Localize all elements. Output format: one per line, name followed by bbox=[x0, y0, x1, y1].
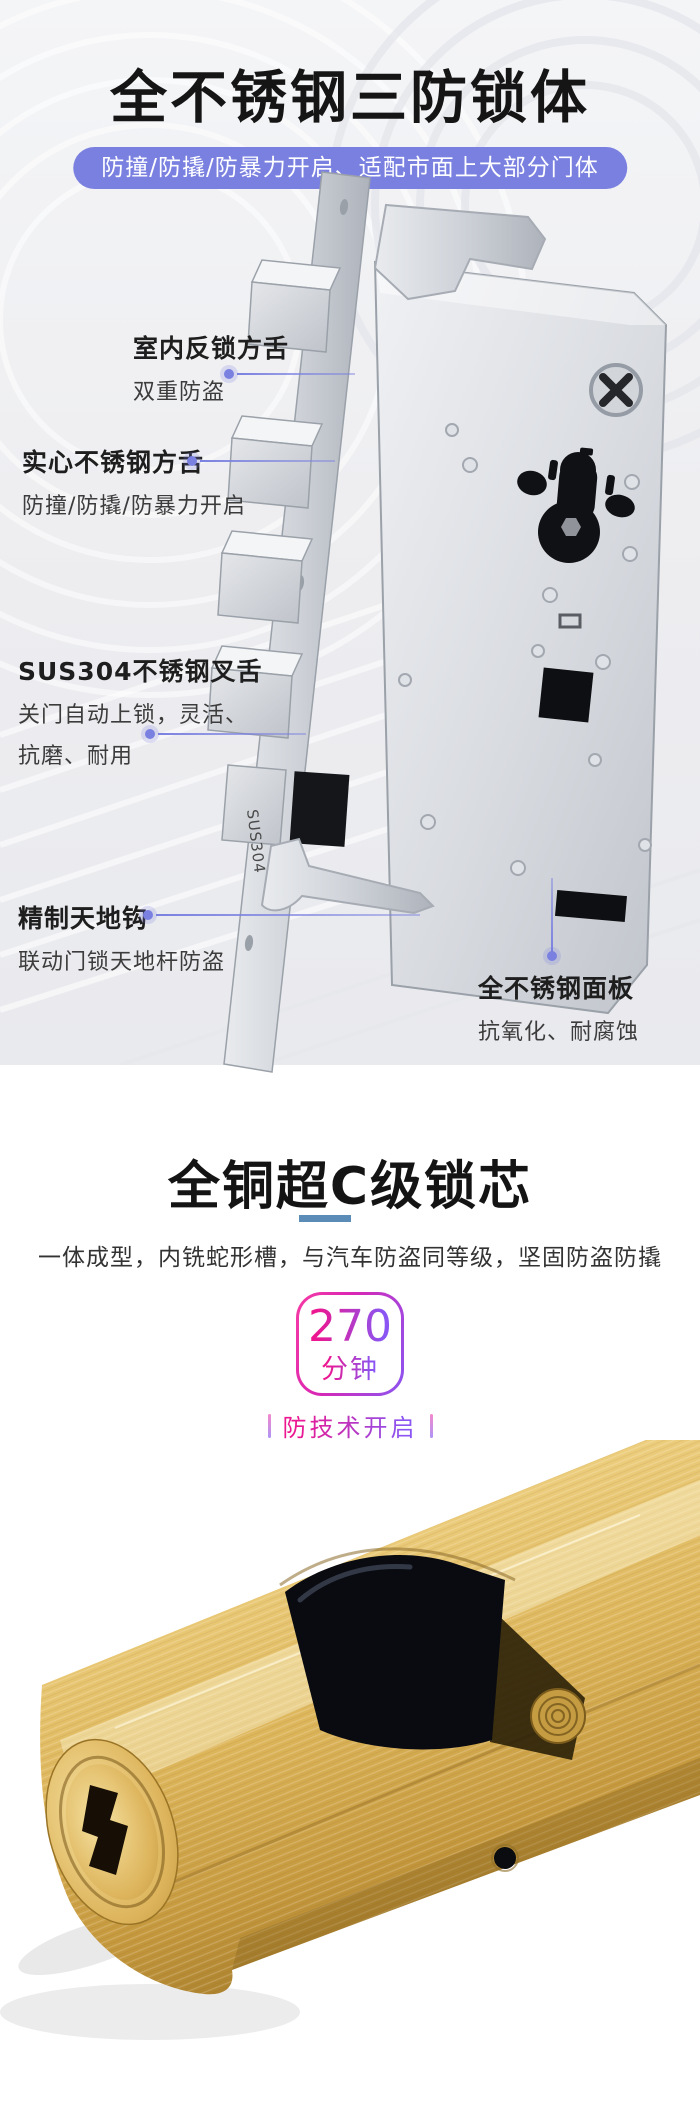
callout-title: 精制天地钩 bbox=[18, 899, 225, 935]
badge-unit: 分钟 bbox=[321, 1356, 379, 1383]
callout-desc: 关门自动上锁，灵活、 bbox=[18, 697, 263, 729]
callout-line bbox=[200, 460, 335, 462]
callout-solid-bolt: 实心不锈钢方舌 防撞/防撬/防暴力开启 bbox=[22, 443, 246, 520]
caption-divider-right bbox=[430, 1414, 433, 1438]
pin-hole bbox=[492, 1845, 518, 1871]
callout-desc: 联动门锁天地杆防盗 bbox=[18, 944, 225, 976]
callout-title: 全不锈钢面板 bbox=[478, 969, 639, 1005]
section1-title: 全不锈钢三防锁体 bbox=[0, 52, 700, 134]
callout-hook: 精制天地钩 联动门锁天地杆防盗 bbox=[18, 899, 225, 976]
callout-dot bbox=[547, 951, 557, 961]
callout-dot bbox=[224, 369, 234, 379]
set-screw-hole bbox=[531, 1689, 585, 1743]
section2-subtitle: 一体成型，内铣蛇形槽，与汽车防盗同等级，坚固防盗防撬 bbox=[0, 1238, 700, 1272]
callout-title: SUS304不锈钢叉舌 bbox=[18, 652, 263, 688]
title-underline bbox=[299, 1215, 351, 1222]
brass-cylinder-image bbox=[0, 1440, 700, 2123]
minutes-badge: 270 分钟 bbox=[296, 1292, 404, 1396]
badge-value: 270 bbox=[308, 1305, 392, 1349]
callout-fork-bolt: SUS304不锈钢叉舌 关门自动上锁，灵活、 抗磨、耐用 bbox=[18, 652, 263, 770]
callout-desc: 双重防盗 bbox=[133, 374, 289, 406]
caption-text: 防技术开启 bbox=[283, 1408, 418, 1443]
callout-line bbox=[156, 914, 420, 916]
callout-line bbox=[237, 373, 355, 375]
callout-inner-deadbolt: 室内反锁方舌 双重防盗 bbox=[133, 329, 289, 406]
caption-divider-left bbox=[268, 1414, 271, 1438]
callout-desc: 抗氧化、耐腐蚀 bbox=[478, 1014, 639, 1046]
callout-line bbox=[158, 733, 306, 735]
callout-dot bbox=[143, 910, 153, 920]
callout-panel: 全不锈钢面板 抗氧化、耐腐蚀 bbox=[478, 969, 639, 1046]
callout-line bbox=[551, 878, 553, 952]
callout-desc: 防撞/防撬/防暴力开启 bbox=[22, 488, 246, 520]
callout-dot bbox=[187, 456, 197, 466]
product-detail-page: 全不锈钢三防锁体 防撞/防撬/防暴力开启、适配市面上大部分门体 bbox=[0, 0, 700, 2123]
callout-dot bbox=[145, 729, 155, 739]
screw-head bbox=[591, 365, 641, 415]
badge-caption: 防技术开启 bbox=[0, 1408, 700, 1443]
callout-desc: 抗磨、耐用 bbox=[18, 738, 263, 770]
section2-title: 全铜超C级锁芯 bbox=[0, 1144, 700, 1219]
cylinder-shadow bbox=[0, 1984, 300, 2040]
callout-title: 室内反锁方舌 bbox=[133, 329, 289, 365]
